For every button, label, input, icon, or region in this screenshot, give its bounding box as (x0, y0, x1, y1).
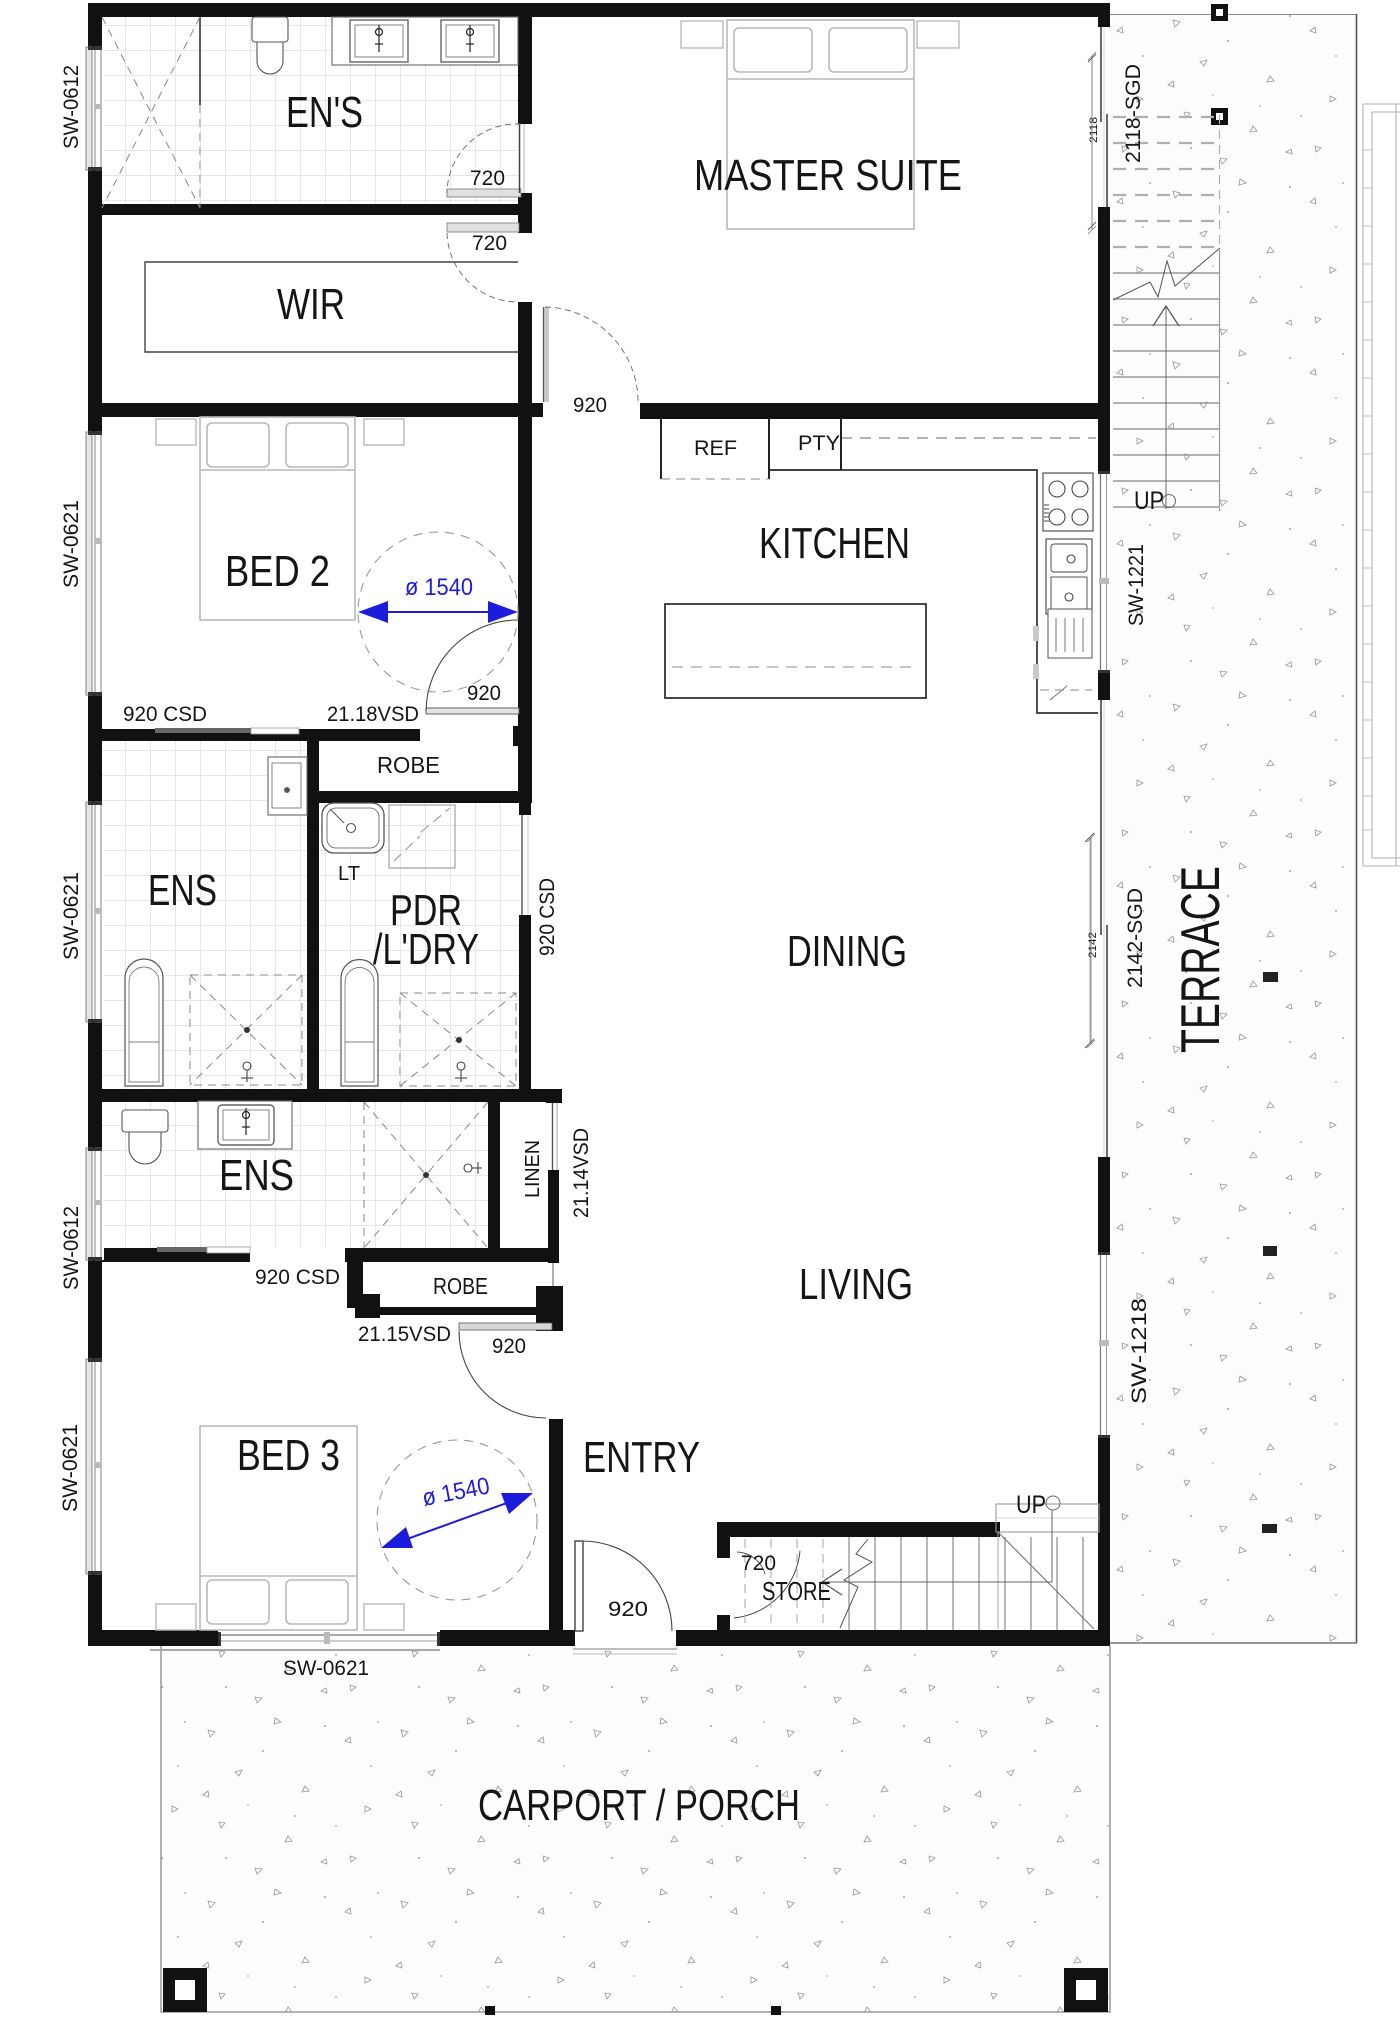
svg-text:ENTRY: ENTRY (583, 1433, 700, 1482)
svg-text:LIVING: LIVING (799, 1260, 913, 1309)
svg-text:DINING: DINING (787, 927, 907, 976)
svg-text:2118-SGD: 2118-SGD (1122, 64, 1145, 163)
svg-text:SW-0621: SW-0621 (60, 872, 83, 960)
svg-text:WIR: WIR (277, 280, 345, 329)
svg-text:21.14VSD: 21.14VSD (570, 1128, 593, 1218)
svg-text:SW-0621: SW-0621 (283, 1657, 369, 1680)
svg-text:21.18VSD: 21.18VSD (327, 703, 419, 726)
svg-text:UP: UP (1134, 487, 1164, 515)
svg-text:920: 920 (467, 682, 501, 705)
svg-text:920: 920 (492, 1335, 526, 1358)
svg-text:920 CSD: 920 CSD (255, 1266, 340, 1289)
svg-text:ROBE: ROBE (377, 752, 440, 778)
svg-text:ENS: ENS (219, 1151, 294, 1200)
svg-text:EN'S: EN'S (286, 88, 363, 137)
svg-text:2118: 2118 (1088, 117, 1100, 143)
svg-text:/L'DRY: /L'DRY (373, 925, 479, 974)
svg-text:PTY: PTY (798, 432, 840, 455)
svg-text:STORE: STORE (762, 1576, 831, 1606)
svg-text:MASTER SUITE: MASTER SUITE (694, 151, 962, 200)
svg-text:SW-0621: SW-0621 (60, 500, 83, 588)
svg-text:SW-0612: SW-0612 (60, 65, 83, 149)
svg-text:720: 720 (741, 1552, 776, 1575)
svg-text:UP: UP (1016, 1491, 1046, 1519)
svg-text:SW-1218: SW-1218 (1128, 1298, 1151, 1404)
svg-text:21.15VSD: 21.15VSD (358, 1323, 451, 1346)
svg-text:REF: REF (694, 437, 737, 460)
svg-text:SW-0612: SW-0612 (60, 1206, 83, 1290)
svg-text:CARPORT / PORCH: CARPORT / PORCH (478, 1781, 800, 1830)
svg-text:ø 1540: ø 1540 (405, 574, 473, 601)
svg-text:BED 3: BED 3 (237, 1431, 340, 1480)
svg-text:SW-1221: SW-1221 (1125, 544, 1148, 626)
svg-text:920 CSD: 920 CSD (536, 878, 559, 956)
svg-text:2142: 2142 (1087, 932, 1099, 958)
svg-text:2142-SGD: 2142-SGD (1124, 888, 1147, 988)
svg-text:LT: LT (338, 863, 360, 885)
svg-text:ROBE: ROBE (433, 1273, 488, 1299)
svg-text:ENS: ENS (148, 866, 217, 915)
svg-text:920 CSD: 920 CSD (123, 703, 207, 726)
svg-text:LINEN: LINEN (522, 1140, 544, 1198)
svg-text:KITCHEN: KITCHEN (759, 519, 910, 568)
svg-text:TERRACE: TERRACE (1169, 866, 1231, 1053)
svg-text:BED 2: BED 2 (225, 547, 330, 596)
svg-text:920: 920 (573, 394, 607, 417)
svg-text:920: 920 (608, 1598, 648, 1621)
svg-text:SW-0621: SW-0621 (59, 1424, 82, 1512)
svg-text:720: 720 (472, 232, 507, 255)
svg-text:720: 720 (470, 167, 505, 190)
